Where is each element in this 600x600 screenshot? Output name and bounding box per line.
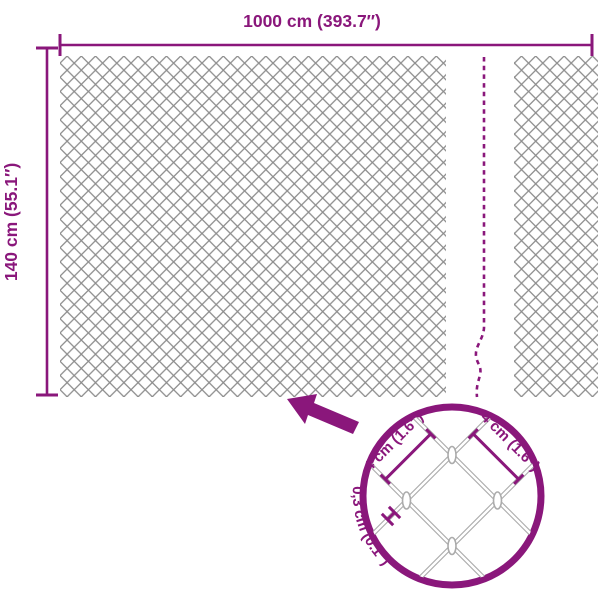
mesh-break-line <box>476 57 484 397</box>
zoom-arrow-icon <box>287 394 359 434</box>
height-dimension-label: 140 cm (55.1″) <box>1 163 21 281</box>
mesh-panel-left <box>60 56 446 397</box>
height-dimension: 140 cm (55.1″) <box>1 48 58 395</box>
width-dimension: 1000 cm (393.7″) <box>60 11 592 56</box>
mesh-panel-right <box>514 56 598 397</box>
diagram-canvas: 1000 cm (393.7″) 140 cm (55.1″) <box>0 0 600 600</box>
fence-dimension-diagram: 1000 cm (393.7″) 140 cm (55.1″) <box>0 0 600 600</box>
width-dimension-label: 1000 cm (393.7″) <box>243 11 381 31</box>
